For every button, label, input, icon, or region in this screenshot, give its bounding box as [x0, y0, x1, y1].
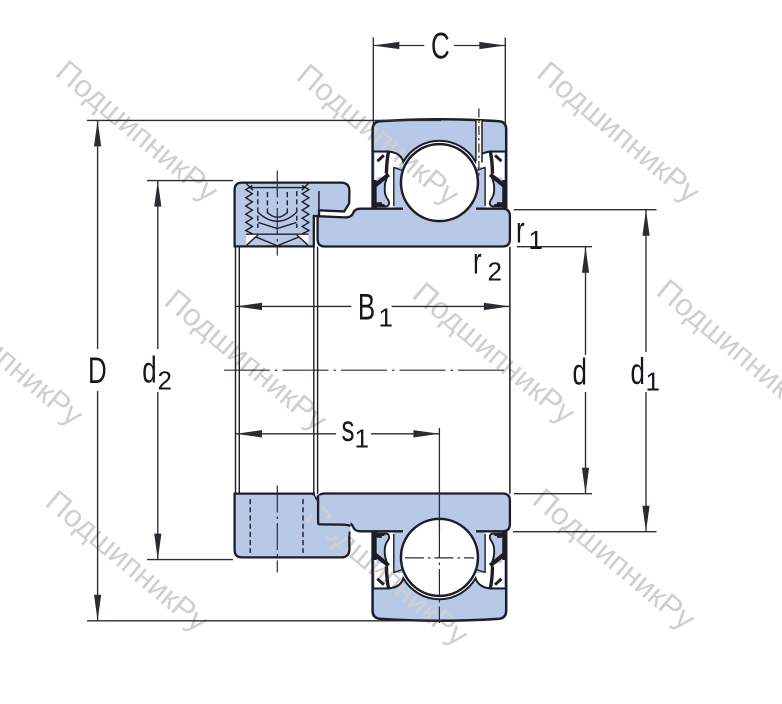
- svg-text:1: 1: [355, 424, 369, 454]
- svg-text:d: d: [631, 350, 645, 392]
- svg-text:2: 2: [158, 366, 172, 396]
- svg-text:r: r: [473, 240, 482, 282]
- svg-text:d: d: [142, 349, 156, 391]
- svg-text:1: 1: [529, 225, 543, 255]
- svg-text:1: 1: [646, 367, 660, 397]
- svg-text:1: 1: [379, 303, 393, 333]
- svg-text:2: 2: [488, 257, 502, 287]
- svg-text:r: r: [516, 209, 525, 251]
- svg-text:C: C: [431, 25, 450, 67]
- svg-text:d: d: [573, 351, 587, 393]
- svg-text:s: s: [342, 407, 355, 449]
- svg-text:D: D: [88, 350, 107, 392]
- svg-text:B: B: [358, 286, 375, 328]
